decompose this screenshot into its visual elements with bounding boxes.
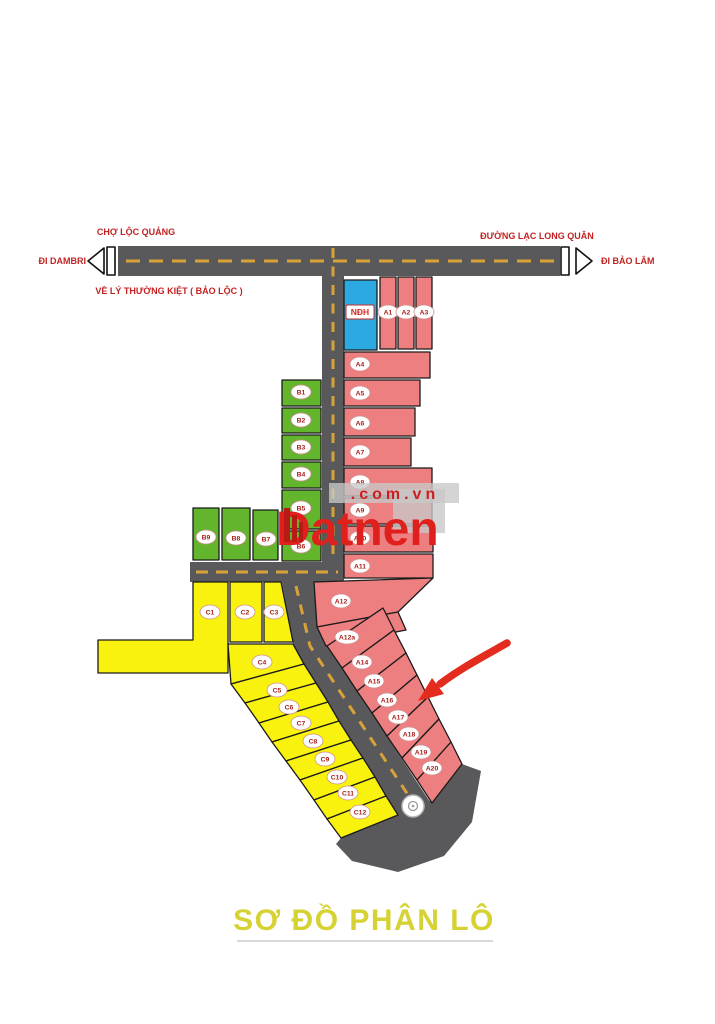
plot-label-A15: A15 [368, 678, 381, 685]
plot-label-A20: A20 [426, 765, 439, 772]
plot-label-C1: C1 [206, 609, 215, 616]
plot-label-A6: A6 [356, 420, 365, 427]
plot-label-A18: A18 [403, 731, 416, 738]
plot-label-A4: A4 [356, 361, 365, 368]
roundabout [402, 795, 424, 817]
plot-label-NDH: NĐH [351, 307, 369, 317]
plot-label-C9: C9 [321, 756, 330, 763]
plot-label-A17: A17 [392, 714, 405, 721]
plot-label-A2: A2 [402, 309, 411, 316]
plot-label-C7: C7 [297, 720, 306, 727]
plot-label-A14: A14 [356, 659, 369, 666]
plot-label-A1: A1 [384, 309, 393, 316]
plot-label-A7: A7 [356, 449, 365, 456]
plot-label-C3: C3 [270, 609, 279, 616]
plot-label-B4: B4 [297, 471, 306, 478]
east-road-arrow [561, 247, 592, 275]
plot-label-C2: C2 [241, 609, 250, 616]
label-west-direction: ĐI DAMBRI [39, 256, 87, 266]
plot-label-A11: A11 [354, 563, 366, 570]
page-title: SƠ ĐỒ PHÂN LÔ [233, 903, 495, 937]
label-market: CHỢ LỘC QUẢNG [97, 226, 175, 237]
plot-label-C5: C5 [273, 687, 282, 694]
plot-label-C4: C4 [258, 659, 267, 666]
plot-label-C6: C6 [285, 704, 294, 711]
plot-C1 [98, 582, 228, 673]
plan-image: NĐHA1A2A3A4A5A6A7A8A9A10A11A12A12aA14A15… [0, 0, 715, 1024]
west-road-arrow [88, 247, 115, 275]
plot-label-C12: C12 [354, 809, 367, 816]
label-main-road: ĐƯỜNG LẠC LONG QUÂN [480, 230, 594, 241]
arrow-left-icon [88, 248, 104, 274]
plot-label-B2: B2 [297, 417, 306, 424]
plot-label-A12: A12 [335, 598, 348, 605]
plot-label-C11: C11 [342, 790, 354, 797]
highlight-arrow [418, 643, 507, 701]
plot-label-B1: B1 [297, 389, 306, 396]
plot-label-B9: B9 [202, 534, 211, 541]
label-east-direction: ĐI BẢO LÂM [601, 255, 655, 266]
plot-label-A3: A3 [420, 309, 429, 316]
plot-label-B7: B7 [262, 536, 271, 543]
arrow-right-icon [576, 248, 592, 274]
plots-layer [98, 277, 462, 838]
title-block: SƠ ĐỒ PHÂN LÔ [233, 903, 495, 941]
watermark-suffix: .com.vn [351, 486, 439, 503]
plot-label-B3: B3 [297, 444, 306, 451]
plot-label-C8: C8 [309, 738, 318, 745]
plan-canvas: NĐHA1A2A3A4A5A6A7A8A9A10A11A12A12aA14A15… [0, 0, 715, 1024]
label-south-note: VỀ LÝ THƯỜNG KIỆT ( BẢO LỘC ) [95, 285, 242, 296]
plot-label-C10: C10 [331, 774, 344, 781]
plot-label-A12a: A12a [339, 634, 355, 641]
plot-label-A19: A19 [415, 749, 428, 756]
plot-label-A5: A5 [356, 390, 365, 397]
plot-label-A16: A16 [381, 697, 394, 704]
plot-label-B8: B8 [232, 535, 241, 542]
